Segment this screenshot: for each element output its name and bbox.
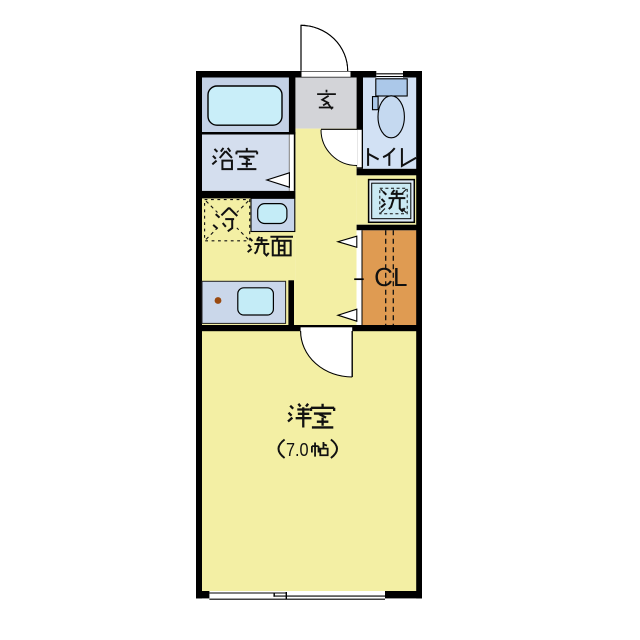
- svg-text:CL: CL: [374, 262, 407, 292]
- svg-text:7.0: 7.0: [286, 439, 309, 460]
